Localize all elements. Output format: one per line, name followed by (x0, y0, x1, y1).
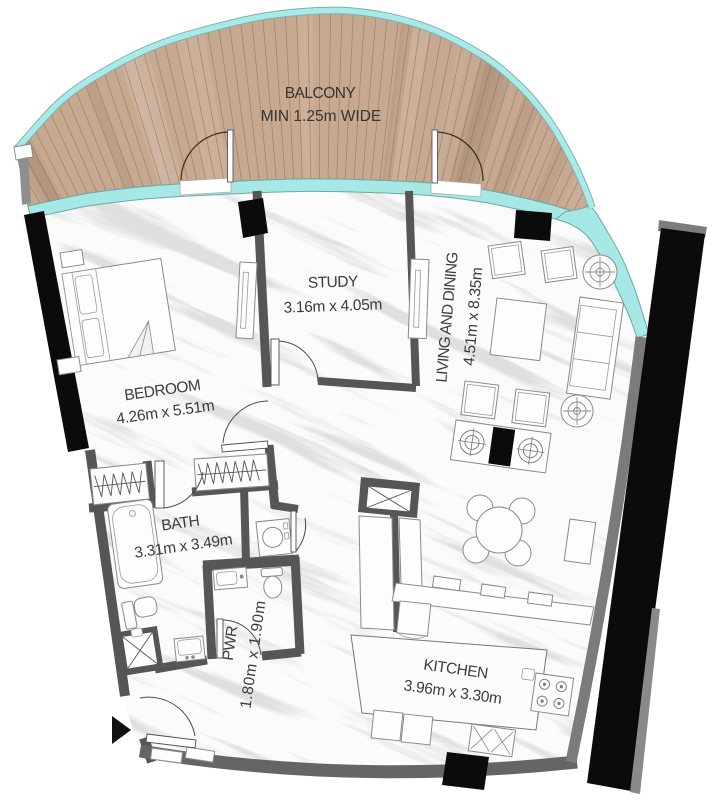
svg-text:BALCONY: BALCONY (285, 85, 356, 102)
svg-text:STUDY: STUDY (308, 273, 359, 292)
svg-text:MIN 1.25m WIDE: MIN 1.25m WIDE (261, 108, 382, 125)
svg-text:3.16m x 4.05m: 3.16m x 4.05m (283, 296, 382, 316)
